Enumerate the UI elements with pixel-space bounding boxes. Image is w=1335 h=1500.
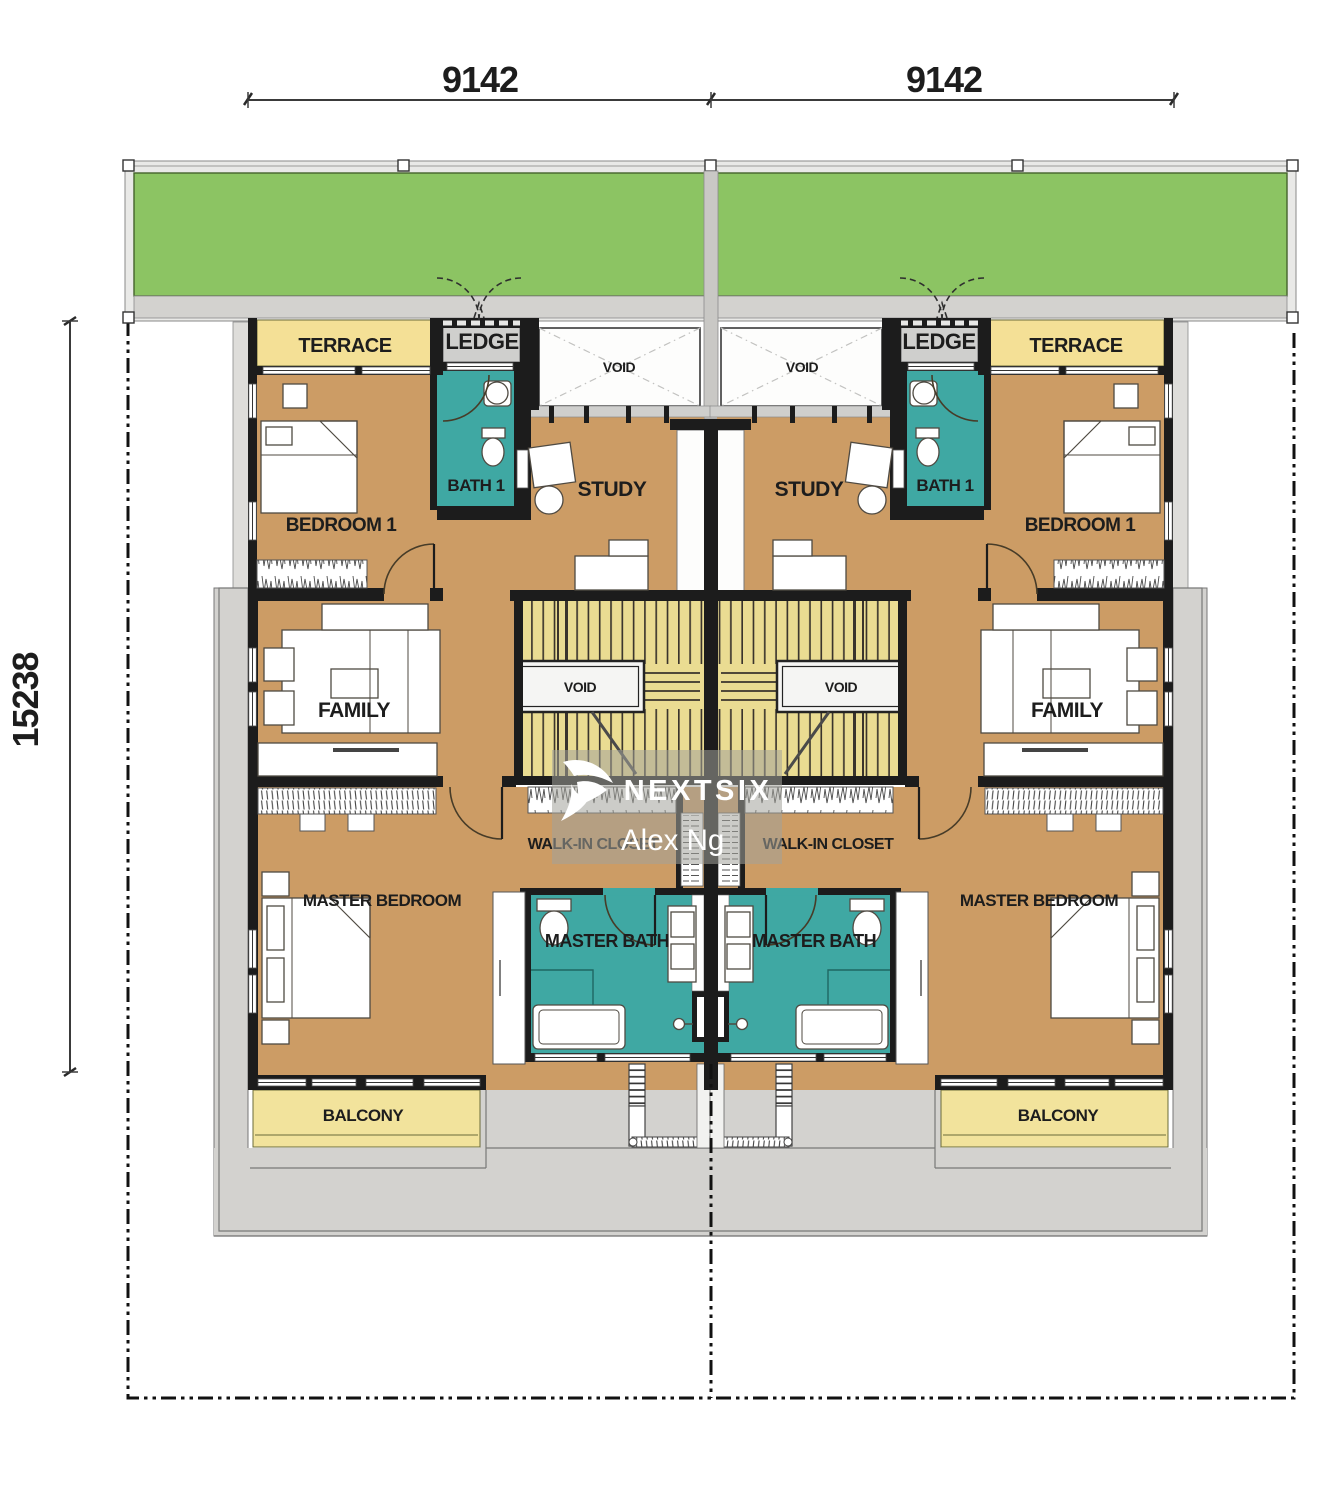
svg-text:LEDGE: LEDGE: [445, 329, 518, 354]
svg-text:MASTER BEDROOM: MASTER BEDROOM: [960, 891, 1119, 910]
svg-text:9142: 9142: [442, 59, 518, 100]
svg-text:BALCONY: BALCONY: [1018, 1106, 1100, 1125]
svg-text:WALK-IN CLOSET: WALK-IN CLOSET: [763, 836, 894, 853]
svg-text:BATH 1: BATH 1: [447, 476, 504, 495]
svg-text:Alex Ng: Alex Ng: [621, 824, 724, 857]
svg-text:MASTER BEDROOM: MASTER BEDROOM: [303, 891, 462, 910]
svg-text:BEDROOM 1: BEDROOM 1: [1025, 515, 1137, 536]
svg-text:9142: 9142: [906, 59, 982, 100]
svg-text:NEXTSIX: NEXTSIX: [624, 775, 773, 807]
svg-text:BATH 1: BATH 1: [916, 476, 973, 495]
svg-text:VOID: VOID: [786, 359, 819, 375]
svg-text:FAMILY: FAMILY: [318, 699, 391, 722]
svg-text:STUDY: STUDY: [775, 478, 844, 501]
svg-text:STUDY: STUDY: [578, 478, 647, 501]
svg-text:VOID: VOID: [603, 359, 636, 375]
svg-text:VOID: VOID: [825, 679, 858, 695]
svg-text:MASTER BATH: MASTER BATH: [752, 931, 876, 951]
svg-text:TERRACE: TERRACE: [298, 335, 391, 357]
svg-text:TERRACE: TERRACE: [1029, 335, 1122, 357]
svg-text:VOID: VOID: [564, 679, 597, 695]
svg-text:BALCONY: BALCONY: [323, 1106, 405, 1125]
svg-text:LEDGE: LEDGE: [902, 329, 975, 354]
svg-text:BEDROOM 1: BEDROOM 1: [286, 515, 398, 536]
svg-text:MASTER BATH: MASTER BATH: [545, 931, 669, 951]
svg-text:15238: 15238: [5, 652, 46, 747]
svg-text:FAMILY: FAMILY: [1031, 699, 1104, 722]
